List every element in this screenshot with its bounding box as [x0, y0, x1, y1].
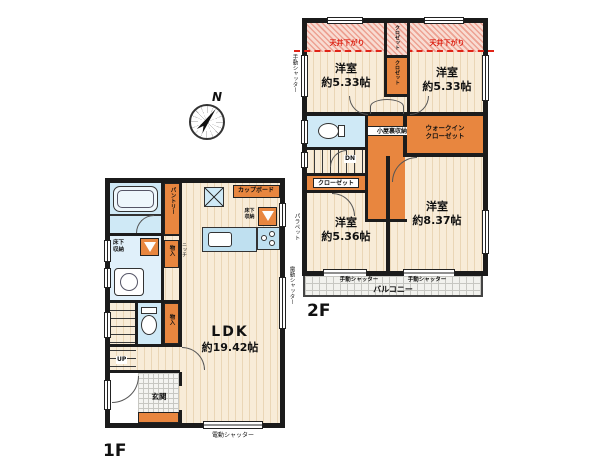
bedroom-tr-size: 約5.33帖 — [410, 80, 484, 94]
wall — [384, 94, 410, 97]
floor-plan-canvas: N 天井下がり 天井下がり クロゼット クロゼット 洋室 約5.33帖 洋室 約… — [0, 0, 600, 468]
bedroom-tr-label: 洋室 約5.33帖 — [410, 66, 484, 95]
parapet-label: パラペット — [293, 213, 299, 241]
bathroom — [110, 183, 161, 233]
closet-left-label: クローゼット — [313, 178, 359, 188]
toilet-icon — [141, 315, 157, 335]
burner-icon — [269, 240, 275, 246]
skylight-icon — [204, 187, 224, 207]
closet-mid-label: クロゼット — [394, 60, 399, 85]
window — [482, 55, 489, 101]
walk-in-closet-label: ウォークイン クローゼット — [409, 124, 481, 141]
stairs-up-label: UP — [116, 356, 127, 364]
window — [301, 152, 308, 168]
toilet-tank-icon — [338, 125, 345, 137]
bedroom-tr-name: 洋室 — [410, 66, 484, 80]
stove-counter — [257, 227, 280, 250]
compass-north-label: N — [212, 90, 222, 106]
ldk-name: LDK — [182, 323, 278, 341]
balcony-label: バルコニー — [303, 285, 483, 295]
window — [104, 240, 111, 262]
shutter-label-br: 手動シャッター — [398, 277, 456, 284]
floor1-label: 1F — [103, 440, 126, 462]
walk-in-closet: ウォークイン クローゼット — [407, 116, 483, 154]
window — [301, 55, 308, 97]
entrance-door — [104, 380, 111, 410]
ldk-label: LDK 約19.42帖 — [182, 323, 278, 355]
bedroom-bl-label: 洋室 約5.36帖 — [308, 216, 384, 245]
sloped-ceiling-note-right: 天井下がり — [415, 38, 479, 48]
window — [279, 203, 286, 227]
door-arc — [136, 215, 154, 233]
door-arc — [370, 99, 404, 114]
window — [203, 421, 263, 429]
window — [301, 120, 308, 144]
burner-icon — [261, 235, 267, 241]
closet-top-label: クロゼット — [394, 25, 399, 50]
bedroom-bl-size: 約5.36帖 — [308, 230, 384, 244]
bedroom-tl-size: 約5.33帖 — [310, 76, 382, 90]
sloped-ceiling-note-left: 天井下がり — [315, 38, 379, 48]
entrance-step — [138, 412, 179, 423]
hall-storage: 物入 — [164, 240, 179, 268]
wall — [179, 372, 182, 386]
underfloor-storage-kitchen-label: 床下収納 — [243, 208, 256, 220]
toilet-tank-icon — [141, 307, 157, 314]
floor2-label: 2F — [307, 300, 330, 322]
toilet-icon — [318, 123, 339, 139]
bedroom-tl-label: 洋室 約5.33帖 — [310, 62, 382, 91]
wall — [386, 156, 390, 271]
toilet-storage-label: 物入 — [168, 314, 174, 325]
pantry-label: パントリー — [169, 187, 175, 215]
shutter-label-left: 手動シャッター — [291, 54, 297, 93]
window — [424, 17, 464, 24]
floor2-toilet-room — [307, 116, 365, 147]
wall — [110, 344, 182, 347]
closet-mid: クロゼット — [387, 58, 407, 94]
window — [104, 312, 111, 338]
floor-access-hatch — [258, 207, 277, 226]
burner-icon — [269, 231, 275, 237]
entrance-label: 玄関 — [140, 392, 178, 402]
bedroom-br-size: 約8.37帖 — [398, 214, 476, 228]
wall — [179, 410, 182, 423]
wall — [179, 183, 182, 298]
window — [482, 210, 489, 254]
walk-in-closet-line2: クローゼット — [409, 132, 481, 140]
window — [279, 277, 286, 329]
bedroom-bl-name: 洋室 — [308, 216, 384, 230]
underfloor-storage-washroom-label: 床下収納 — [112, 240, 125, 253]
hall-storage-label: 物入 — [168, 245, 174, 256]
washbasin-icon — [114, 268, 144, 296]
floor-access-hatch — [140, 238, 159, 256]
floor1-toilet-room — [138, 303, 161, 344]
cupboard-label: カップボード — [234, 187, 278, 195]
shutter-label-bl: 手動シャッター — [330, 277, 388, 284]
bedroom-br-name: 洋室 — [398, 200, 476, 214]
bedroom-tl-name: 洋室 — [310, 62, 382, 76]
window — [327, 17, 363, 24]
pantry: パントリー — [164, 183, 180, 235]
bedroom-br-label: 洋室 約8.37帖 — [398, 200, 476, 229]
toilet-storage: 物入 — [164, 303, 179, 344]
window — [104, 268, 111, 288]
closet-top: クロゼット — [387, 23, 407, 55]
kitchen-island — [202, 227, 257, 252]
shutter-label-right: 電動シャッター — [288, 266, 294, 305]
shutter-label-bottom: 電動シャッター — [203, 432, 263, 440]
cupboard: カップボード — [233, 185, 280, 198]
bathtub-icon — [113, 186, 158, 212]
sink-icon — [208, 232, 232, 247]
